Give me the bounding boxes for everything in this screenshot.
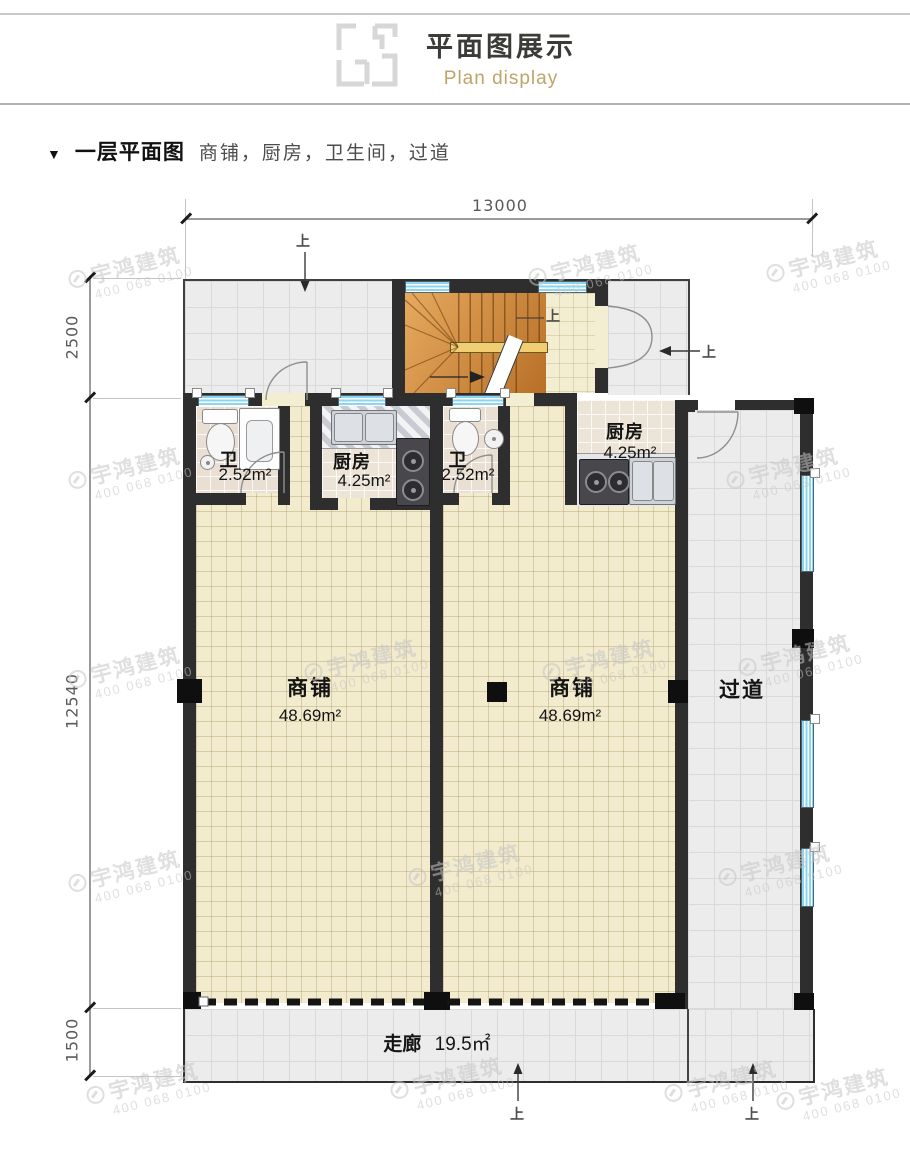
page-subtitle: Plan display bbox=[426, 68, 576, 90]
shop-right-label: 商铺 bbox=[549, 672, 595, 702]
corridor-area: 19.5㎡ bbox=[435, 1034, 491, 1055]
page-header: 平面图展示 Plan display bbox=[0, 22, 910, 93]
column bbox=[794, 398, 814, 414]
section-description: 商铺，厨房，卫生间，过道 bbox=[199, 138, 451, 165]
burner bbox=[402, 479, 424, 501]
sill-mark bbox=[810, 468, 820, 478]
dimension-top-width: 13000 bbox=[472, 196, 528, 215]
stair-treads-upper bbox=[458, 293, 546, 347]
watermark-logo-icon bbox=[67, 469, 89, 491]
shops-right-wall bbox=[675, 400, 688, 1009]
burner bbox=[585, 471, 607, 493]
watermark: 宇鸿建筑400 068 0100 bbox=[65, 438, 195, 509]
window bbox=[801, 475, 814, 572]
column bbox=[183, 992, 201, 1009]
sink-basin bbox=[246, 420, 273, 462]
watermark-logo-icon bbox=[775, 1090, 797, 1112]
column bbox=[487, 682, 507, 702]
corridor-divider-line bbox=[687, 1009, 689, 1081]
entry-door-opening bbox=[595, 306, 608, 368]
sill-mark bbox=[245, 388, 255, 398]
stairwell-left-wall bbox=[392, 293, 405, 393]
sink-basin bbox=[653, 461, 674, 501]
shop-right-area: 48.69m² bbox=[539, 706, 601, 726]
toilet-tank bbox=[449, 408, 481, 422]
watermark-logo-icon bbox=[67, 872, 89, 894]
window bbox=[538, 281, 587, 293]
bath-left-area: 2.52m² bbox=[219, 465, 272, 485]
corridor-name: 走廊 bbox=[383, 1034, 421, 1055]
sill-mark bbox=[383, 388, 393, 398]
bath-mid-wall bbox=[443, 493, 459, 505]
column bbox=[792, 629, 814, 648]
passage-top-wall bbox=[688, 400, 698, 410]
stair-up-label: 上 bbox=[546, 306, 560, 326]
triangle-marker-icon: ▼ bbox=[47, 146, 61, 162]
section-heading: ▼ 一层平面图 商铺，厨房，卫生间，过道 bbox=[47, 136, 451, 166]
section-title: 一层平面图 bbox=[75, 136, 185, 166]
extension-line bbox=[93, 1076, 181, 1077]
column bbox=[177, 679, 202, 703]
kitchen-left-wall bbox=[310, 406, 322, 510]
window bbox=[801, 720, 814, 808]
bath-mid-wall bbox=[498, 406, 510, 505]
stair-door-opening bbox=[506, 393, 534, 406]
bath-left-wall bbox=[196, 493, 246, 505]
floorplan-icon bbox=[334, 22, 400, 93]
watermark-logo-icon bbox=[85, 1084, 107, 1106]
sill-mark bbox=[810, 714, 820, 724]
wash-basin bbox=[484, 429, 504, 449]
extension-line bbox=[93, 278, 181, 279]
burner bbox=[402, 450, 424, 472]
passage-label: 过道 bbox=[719, 674, 765, 704]
watermark: 宇鸿建筑400 068 0100 bbox=[65, 237, 195, 308]
dimension-left-top: 2500 bbox=[63, 315, 82, 360]
toilet-tank bbox=[202, 409, 238, 424]
top-dimension-line bbox=[186, 218, 813, 220]
stairwell-right-wall bbox=[595, 368, 608, 393]
watermark-logo-icon bbox=[765, 262, 787, 284]
column bbox=[794, 993, 814, 1010]
stairwell-right-wall bbox=[595, 293, 608, 306]
burner bbox=[608, 471, 630, 493]
extension-line bbox=[93, 398, 181, 399]
staircase bbox=[405, 293, 595, 393]
entry-porch-floor bbox=[608, 279, 690, 395]
dimension-left-middle: 12540 bbox=[63, 673, 82, 729]
kitchen-right-area: 4.25m² bbox=[604, 443, 657, 463]
window bbox=[405, 281, 450, 293]
kitchen-right-wall bbox=[565, 400, 577, 505]
watermark-logo-icon bbox=[663, 1082, 685, 1104]
up-label: 上 bbox=[510, 1104, 524, 1124]
sill-mark bbox=[500, 388, 510, 398]
shop-divider-wall bbox=[430, 406, 443, 1009]
header-top-divider bbox=[0, 13, 910, 15]
watermark: 宇鸿建筑400 068 0100 bbox=[65, 637, 195, 708]
shop-left-area: 48.69m² bbox=[279, 706, 341, 726]
watermark: 宇鸿建筑400 068 0100 bbox=[65, 841, 195, 912]
bath-mid-area: 2.52m² bbox=[442, 465, 495, 485]
kitchen-left-wall bbox=[310, 498, 338, 510]
kitchen-left-area: 4.25m² bbox=[338, 471, 391, 491]
sill-mark bbox=[331, 388, 341, 398]
stair-handrail bbox=[450, 342, 548, 353]
sill-mark bbox=[810, 842, 820, 852]
column bbox=[655, 993, 685, 1009]
sink-basin bbox=[365, 413, 394, 442]
extension-line bbox=[185, 199, 186, 279]
up-label: 上 bbox=[702, 342, 716, 362]
kitchen-right-label: 厨房 bbox=[606, 418, 644, 444]
watermark: 宇鸿建筑400 068 0100 bbox=[763, 231, 893, 302]
column bbox=[668, 680, 688, 703]
up-label: 上 bbox=[745, 1104, 759, 1124]
sink-basin bbox=[632, 461, 653, 501]
sink-basin bbox=[334, 413, 363, 442]
bath-left-wall bbox=[284, 493, 290, 505]
sill-mark bbox=[192, 388, 202, 398]
corridor-floor bbox=[183, 1009, 815, 1083]
shop-left-label: 商铺 bbox=[287, 672, 333, 702]
bath-mid-wall bbox=[492, 493, 510, 505]
window bbox=[801, 848, 814, 907]
extension-line bbox=[812, 199, 813, 257]
dimension-left-bottom: 1500 bbox=[63, 1018, 82, 1063]
shop-door-opening bbox=[262, 393, 305, 406]
extension-line bbox=[93, 1008, 181, 1009]
page: 平面图展示 Plan display ▼ 一层平面图 商铺，厨房，卫生间，过道 … bbox=[0, 0, 910, 1157]
page-title: 平面图展示 bbox=[426, 25, 576, 64]
header-bottom-divider bbox=[0, 103, 910, 105]
floor-drain bbox=[200, 455, 215, 470]
sill-mark bbox=[446, 388, 456, 398]
passage-floor bbox=[688, 410, 800, 1009]
front-porch-floor bbox=[183, 279, 394, 395]
up-label: 上 bbox=[296, 231, 310, 251]
corridor-label: 走廊 19.5㎡ bbox=[383, 1029, 490, 1056]
column bbox=[424, 992, 450, 1010]
